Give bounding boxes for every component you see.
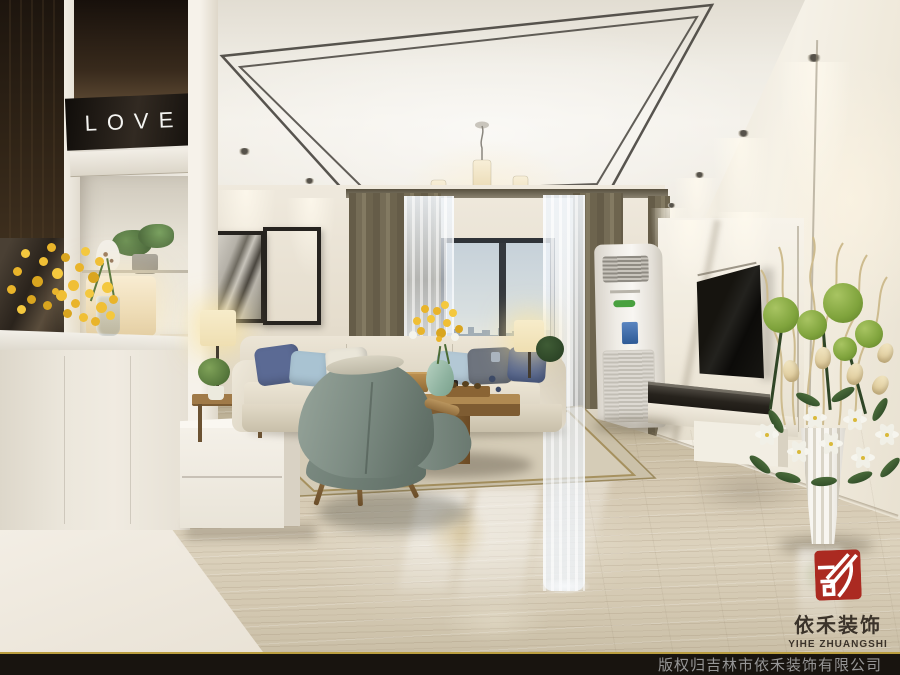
downlight-icon [304,178,315,184]
potted-plant [138,224,174,248]
chest-side [284,430,300,526]
pompom-flower [763,297,799,333]
table-leg [198,404,202,442]
yellow-orchid-flowers [52,288,59,295]
leaf [747,453,773,477]
counter-cabinet [0,350,190,530]
love-sign-text: LOVE [74,107,184,138]
sheer-curtain-puddle [540,578,590,594]
pompom-flower [797,310,827,340]
living-room-render: LOVE [0,0,900,675]
cabinet-seam [130,356,131,524]
ac-display [613,300,635,307]
ac-brand-label [610,290,640,294]
leaf [846,469,874,486]
lily-flower [819,439,843,448]
plant-pot [208,386,224,400]
drawer-seam [182,476,282,478]
table-lamp [200,310,236,346]
brand-name-cn: 依禾装饰 [778,609,898,638]
lily-flower [851,453,875,462]
ac-sticker [622,322,638,344]
brand-watermark: 依禾装饰 YIHE ZHUANGSHI [778,550,898,650]
armchair-shadow [318,492,468,532]
brand-name-en: YIHE ZHUANGSHI [778,639,898,650]
copyright-bar: 版权归吉林市依禾装饰有限公司 [0,652,900,675]
leaf [878,455,900,480]
lily-flower [787,447,811,456]
bowl [474,383,481,389]
downlight-icon [806,54,822,62]
leaf [774,470,801,485]
ac-shadow [594,418,678,434]
lily-flower [843,415,867,424]
potted-plant [536,336,564,362]
copyright-text: 版权归吉林市依禾装饰有限公司 [658,654,882,675]
yellow-table-flowers [436,336,442,342]
lily-flower [875,430,899,439]
love-sign: LOVE [65,93,193,150]
lamp-stem [528,352,531,378]
glass-vase [96,296,120,336]
yihe-logo-icon [814,549,862,601]
topiary-plant [198,358,230,386]
flower-arrangement [735,225,900,545]
wood-grain-lines [0,0,70,248]
sheer-curtain-left [404,196,454,348]
lily-flower [803,413,827,422]
bowl [462,381,469,387]
cabinet-seam [64,356,65,524]
celadon-vase [426,360,454,396]
pompom-flower [823,283,863,323]
shelf-niche-top [74,0,188,100]
shelf-board [70,148,191,177]
lily-flower [755,430,779,439]
ac-top-grille [602,256,649,283]
pompom-flower [855,320,883,348]
downlight-icon [238,148,251,155]
downlight-icon [737,130,750,137]
chest-front [180,428,284,528]
pompom-flower [833,337,857,361]
porcelain-vase [481,360,509,402]
chandelier-reflection [440,598,550,644]
leaf [811,476,838,487]
framed-artwork [263,227,321,325]
